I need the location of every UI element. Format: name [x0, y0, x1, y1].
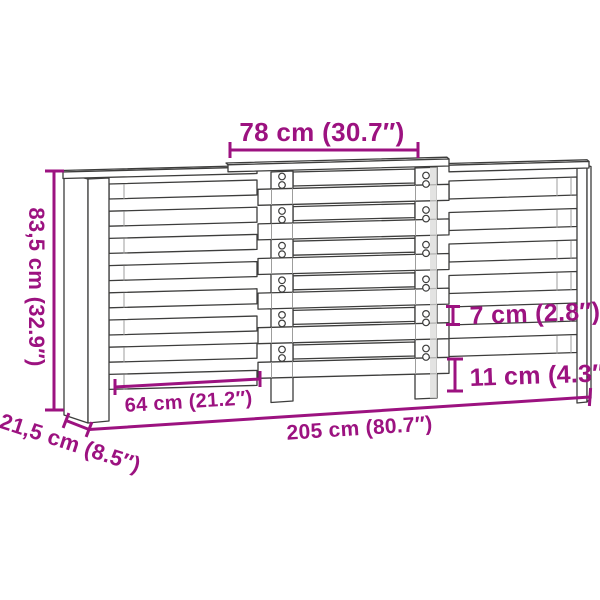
dimension-label-bottom-gap: 11 cm (4.3″) [469, 359, 600, 392]
dimension-label-left-section-width: 64 cm (21.2″) [124, 387, 253, 417]
dimension-label-slat-height: 7 cm (2.8″) [469, 297, 600, 330]
dimension-bottom-gap: 11 cm (4.3″) [447, 359, 600, 392]
dimension-top-width: 78 cm (30.7″) [230, 117, 418, 158]
product-line-drawing: 78 cm (30.7″) 83,5 cm (32.9″) 21,5 cm (8… [0, 0, 600, 600]
dimension-slat-height: 7 cm (2.8″) [446, 297, 600, 330]
dimension-label-height: 83,5 cm (32.9″) [24, 207, 49, 366]
dimension-depth: 21,5 cm (8.5″) [0, 408, 144, 477]
dimension-height: 83,5 cm (32.9″) [24, 171, 64, 410]
dimension-label-total-width: 205 cm (80.7″) [286, 412, 433, 444]
center-section [226, 157, 449, 402]
left-panel-side-face [64, 173, 88, 423]
dimension-label-top-width: 78 cm (30.7″) [239, 117, 404, 147]
left-panel-front-face [88, 178, 109, 423]
dimension-label-depth: 21,5 cm (8.5″) [0, 408, 144, 477]
dimension-diagram: 78 cm (30.7″) 83,5 cm (32.9″) 21,5 cm (8… [0, 0, 600, 600]
